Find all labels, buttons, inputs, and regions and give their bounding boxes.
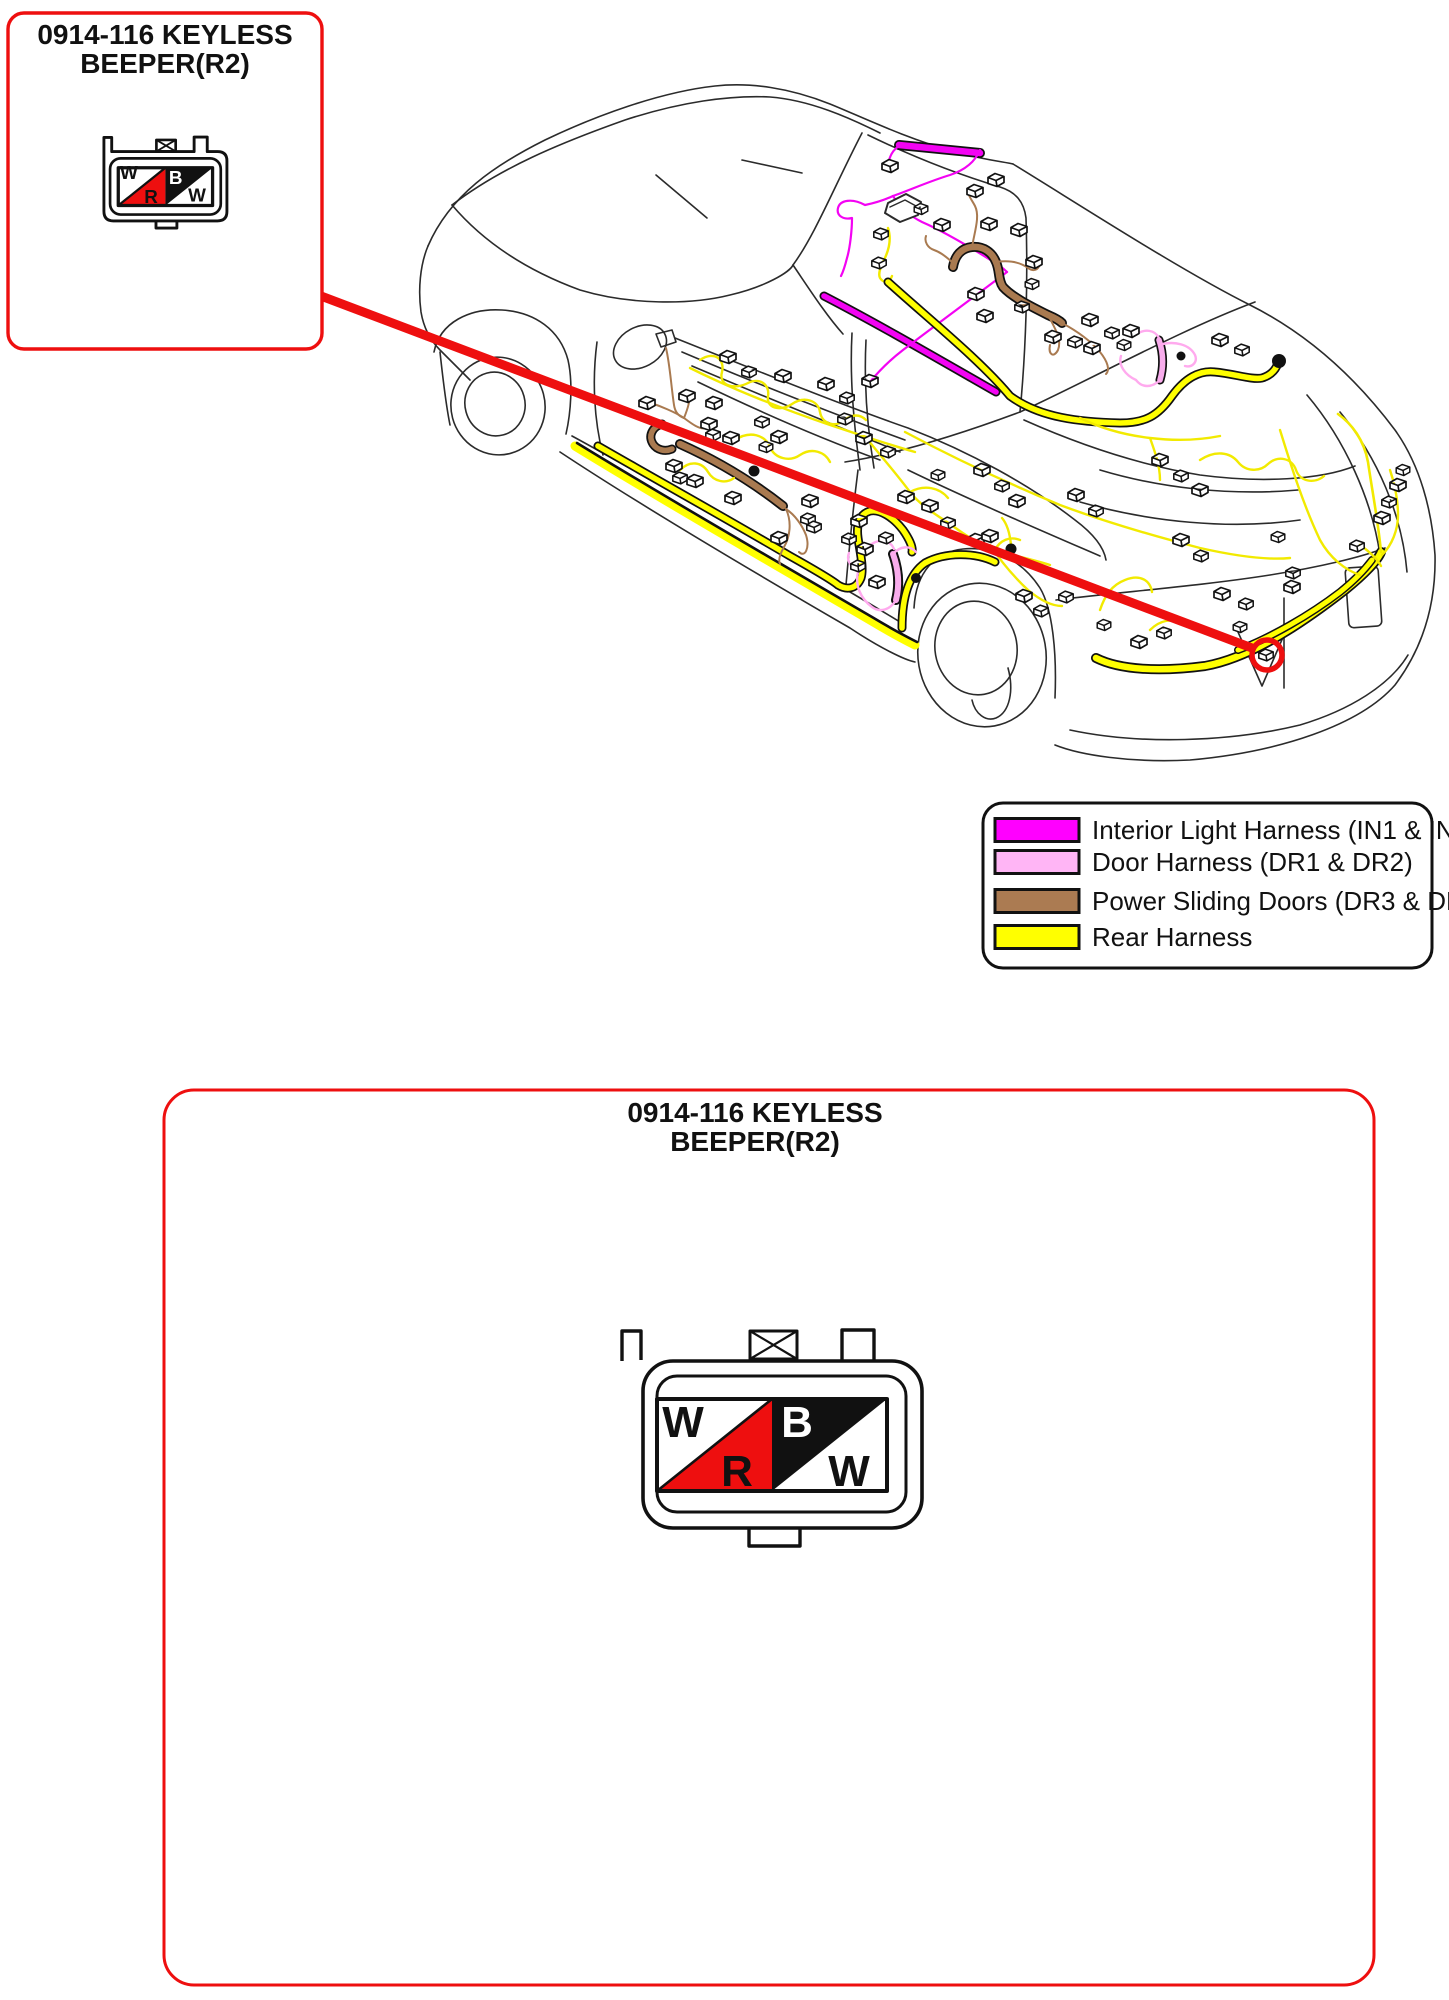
svg-text:BEEPER(R2): BEEPER(R2) (80, 48, 250, 79)
svg-text:BEEPER(R2): BEEPER(R2) (670, 1126, 840, 1157)
svg-text:B: B (781, 1398, 813, 1447)
svg-text:B: B (169, 167, 183, 188)
svg-text:W: W (662, 1398, 704, 1447)
svg-text:0914-116 KEYLESS: 0914-116 KEYLESS (627, 1097, 882, 1128)
svg-text:Rear Harness: Rear Harness (1092, 922, 1252, 952)
svg-text:Interior Light Harness (IN1 &: Interior Light Harness (IN1 & IN2) (1092, 815, 1449, 845)
svg-text:Door Harness (DR1 & DR2): Door Harness (DR1 & DR2) (1092, 847, 1413, 877)
svg-text:W: W (120, 162, 138, 183)
svg-text:W: W (828, 1447, 870, 1496)
svg-text:W: W (188, 184, 206, 205)
svg-text:R: R (721, 1447, 753, 1496)
svg-text:0914-116 KEYLESS: 0914-116 KEYLESS (37, 19, 292, 50)
svg-text:Power Sliding Doors (DR3 & DR4: Power Sliding Doors (DR3 & DR4) (1092, 886, 1449, 916)
svg-text:R: R (144, 186, 158, 207)
